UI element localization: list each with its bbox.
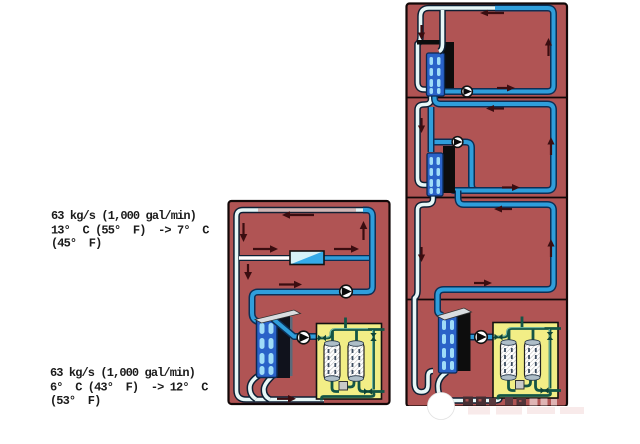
svg-text:(53° F): (53° F) xyxy=(50,394,100,408)
svg-text:13° C (55° F) -> 7° C: 13° C (55° F) -> 7° C xyxy=(51,224,209,238)
svg-text:63 kg/s (1,000 gal/min): 63 kg/s (1,000 gal/min) xyxy=(51,209,196,223)
svg-text:63 kg/s (1,000 gal/min): 63 kg/s (1,000 gal/min) xyxy=(50,366,195,380)
svg-text:6° C (43° F) -> 12° C: 6° C (43° F) -> 12° C xyxy=(50,381,208,395)
svg-text:(45° F): (45° F) xyxy=(51,237,101,251)
